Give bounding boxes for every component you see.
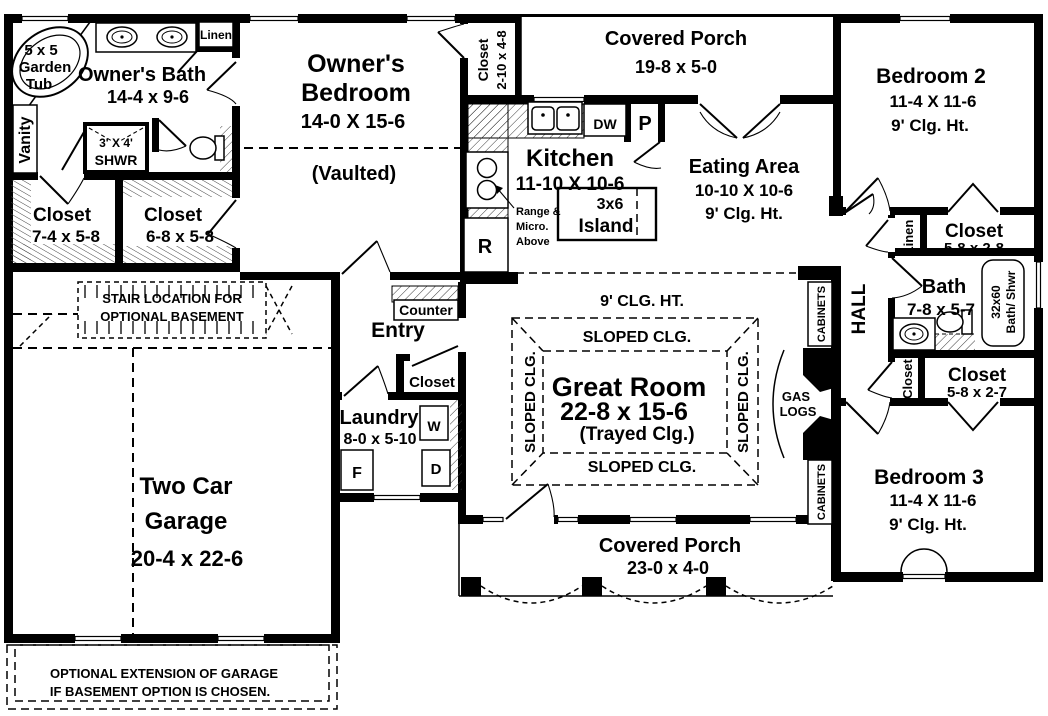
- dryer-label: D: [431, 461, 442, 478]
- window-greatroom-4: [750, 515, 796, 524]
- owners-bath-dims: 14-4 x 9-6: [107, 87, 189, 107]
- garage-name-2: Garage: [145, 508, 228, 535]
- porch-top-dims: 19-8 x 5-0: [635, 57, 717, 77]
- door-closet-b3-bifold: [948, 402, 998, 430]
- porch-column: [461, 577, 481, 596]
- range-cooktop: [466, 152, 514, 208]
- bedroom3-clg: 9' Clg. Ht.: [889, 515, 967, 534]
- washer-label: W: [427, 418, 441, 434]
- window-owners-bedroom-1: [250, 14, 298, 23]
- door-bath2: [892, 258, 922, 298]
- linen-right-label: Linen: [901, 220, 916, 255]
- greatroom-clg: 9' CLG. HT.: [600, 293, 684, 310]
- room-porch-bottom: Covered Porch 23-0 x 4-0: [599, 535, 741, 578]
- owners-bedroom-dims: 14-0 X 15-6: [301, 111, 406, 133]
- entry-closet-label: Closet: [409, 374, 455, 391]
- window-bedroom2: [900, 14, 950, 23]
- door-linen-right: [866, 220, 888, 252]
- sloped-clg-bottom: SLOPED CLG.: [588, 459, 696, 476]
- fridge-label: R: [478, 236, 493, 258]
- window-bedroom3-arched: [901, 549, 947, 582]
- garage-name-1: Two Car: [140, 473, 233, 500]
- owners-bedroom-name-1: Owner's: [307, 50, 405, 78]
- door-bedroom-to-bath: [207, 62, 236, 104]
- window-greatroom-1: [483, 515, 503, 524]
- window-owners-bedroom-2: [407, 14, 455, 23]
- room-entry: Counter Entry Closet: [371, 302, 455, 391]
- door-bedroom3: [846, 402, 890, 434]
- gas-logs-label-1: GAS: [782, 389, 811, 404]
- door-closet1: [40, 176, 84, 204]
- linen-top-label: Linen: [200, 28, 232, 42]
- kitchen-name: Kitchen: [526, 145, 614, 172]
- room-owners-bedroom: Owner's Bedroom 14-0 X 15-6 (Vaulted): [301, 50, 411, 185]
- stair-note-2: OPTIONAL BASEMENT: [100, 309, 244, 324]
- range-note-2: Micro.: [516, 221, 548, 233]
- window-greatroom-2: [558, 515, 578, 524]
- room-hall-closet-top: Closet 2-10 x 4-8: [475, 30, 509, 89]
- freezer-label: F: [352, 465, 362, 482]
- sloped-clg-right: SLOPED CLG.: [735, 351, 752, 453]
- closet2-dims: 6-8 x 5-8: [146, 227, 214, 246]
- garden-tub-label-2: Garden: [19, 59, 72, 76]
- floor-plan-drawing: 5 x 5 Garden Tub Linen Owner's Bath 14-4…: [0, 0, 1048, 716]
- bath2-dims: 7-8 x 5-7: [907, 300, 975, 319]
- door-greatroom-to-porch: [506, 484, 554, 519]
- ext-note-2: IF BASEMENT OPTION IS CHOSEN.: [50, 684, 270, 699]
- owners-vanity-sinks: [96, 23, 196, 52]
- greatroom-dims: 22-8 x 15-6: [560, 398, 688, 426]
- bedroom3-name: Bedroom 3: [874, 466, 984, 489]
- closet-b3-name: Closet: [948, 365, 1007, 386]
- door-entry-to-laundry: [344, 366, 388, 396]
- sloped-clg-left: SLOPED CLG.: [522, 351, 539, 453]
- laundry-dims: 8-0 x 5-10: [344, 431, 417, 448]
- door-pantry: [634, 142, 661, 168]
- bedroom2-dims: 11-4 X 11-6: [890, 92, 977, 111]
- bedroom2-name: Bedroom 2: [876, 65, 986, 88]
- door-french-eating: [700, 104, 780, 138]
- eating-name: Eating Area: [689, 156, 800, 178]
- island-label-2: Island: [579, 216, 634, 237]
- eating-clg: 9' Clg. Ht.: [705, 204, 783, 223]
- door-bath-inner: [62, 132, 84, 170]
- eating-dims: 10-10 X 10-6: [695, 181, 793, 200]
- entry-label: Entry: [371, 319, 425, 342]
- garage-dims: 20-4 x 22-6: [131, 546, 244, 571]
- bath-tub-label-1: 32x60: [989, 285, 1003, 319]
- garden-tub-label-3: Tub: [26, 76, 52, 93]
- closet2-name: Closet: [144, 205, 203, 226]
- room-porch-top: Covered Porch 19-8 x 5-0: [605, 28, 747, 77]
- stair-note-1: STAIR LOCATION FOR: [102, 291, 242, 306]
- porch-top-name: Covered Porch: [605, 28, 747, 50]
- window-laundry: [374, 493, 420, 502]
- sloped-clg-top: SLOPED CLG.: [583, 329, 691, 346]
- range-note-3: Above: [516, 236, 550, 248]
- window-garage-1: [75, 634, 121, 643]
- door-toilet-room: [159, 120, 186, 151]
- shower-label-2: SHWR: [95, 152, 138, 168]
- window-garage-2: [218, 634, 264, 643]
- cabinets-label-upper: CABINETS: [816, 286, 828, 342]
- cabinets-label-lower: CABINETS: [816, 464, 828, 520]
- greatroom-note: (Trayed Clg.): [579, 424, 694, 445]
- ext-note-1: OPTIONAL EXTENSION OF GARAGE: [50, 666, 278, 681]
- hall-closet-label: Closet: [900, 358, 915, 398]
- window-greatroom-3: [630, 515, 676, 524]
- pantry-label: P: [638, 113, 651, 135]
- room-eating-area: Eating Area 10-10 X 10-6 9' Clg. Ht.: [689, 156, 800, 223]
- owners-bath-name: Owner's Bath: [78, 64, 206, 86]
- hall-closet-top-name: Closet: [475, 38, 491, 81]
- owners-bedroom-note: (Vaulted): [312, 163, 396, 185]
- window-tub: [22, 14, 68, 23]
- door-bedroom2: [846, 178, 890, 211]
- hall-closet-top-dims: 2-10 x 4-8: [494, 30, 509, 89]
- owners-bedroom-name-2: Bedroom: [301, 79, 411, 107]
- door-entry-closet: [412, 346, 458, 366]
- room-bedroom2: Bedroom 2 11-4 X 11-6 9' Clg. Ht.: [876, 65, 986, 135]
- closet-b2-name: Closet: [945, 221, 1004, 242]
- garden-tub-label-1: 5 x 5: [24, 42, 57, 59]
- room-bedroom3: Bedroom 3 11-4 X 11-6 9' Clg. Ht.: [874, 466, 984, 534]
- laundry-name: Laundry: [340, 407, 420, 429]
- porch-bottom-name: Covered Porch: [599, 535, 741, 557]
- range-note-1: Range &: [516, 206, 561, 218]
- kitchen-sink: [528, 102, 582, 134]
- island-label-1: 3x6: [597, 196, 624, 213]
- bath2-name: Bath: [922, 276, 966, 298]
- closet-b2-dims: 5-8 x 2-8: [944, 240, 1004, 257]
- toilet-owners: [190, 136, 224, 160]
- dishwasher-label: DW: [593, 116, 617, 132]
- porch-column: [706, 577, 726, 596]
- gas-logs-label-2: LOGS: [780, 404, 817, 419]
- porch-column: [582, 577, 602, 596]
- vanity-label: Vanity: [17, 116, 34, 163]
- door-bedroom-to-entry: [342, 241, 390, 274]
- closet1-name: Closet: [33, 205, 92, 226]
- hall-label: HALL: [849, 283, 870, 334]
- bedroom3-dims: 11-4 X 11-6: [890, 491, 977, 510]
- closet1-dims: 7-4 x 5-8: [32, 227, 100, 246]
- bath-tub-label-2: Bath/ Shwr: [1004, 270, 1018, 333]
- floor-plan-page: 5 x 5 Garden Tub Linen Owner's Bath 14-4…: [0, 0, 1048, 716]
- kitchen-dims: 11-10 X 10-6: [516, 174, 625, 195]
- bath2-vanity-sink: [893, 318, 935, 350]
- window-bath2: [1034, 262, 1043, 308]
- porch-bottom-dims: 23-0 x 4-0: [627, 558, 709, 578]
- bedroom2-clg: 9' Clg. Ht.: [891, 116, 969, 135]
- shower-label-1: 3' X 4': [99, 136, 133, 150]
- closet-b3-dims: 5-8 x 2-7: [947, 384, 1007, 401]
- wing-labels: Linen Closet 5-8 x 2-8 Bath 7-8 x 5-7 32…: [849, 220, 1018, 401]
- counter-label: Counter: [399, 302, 453, 318]
